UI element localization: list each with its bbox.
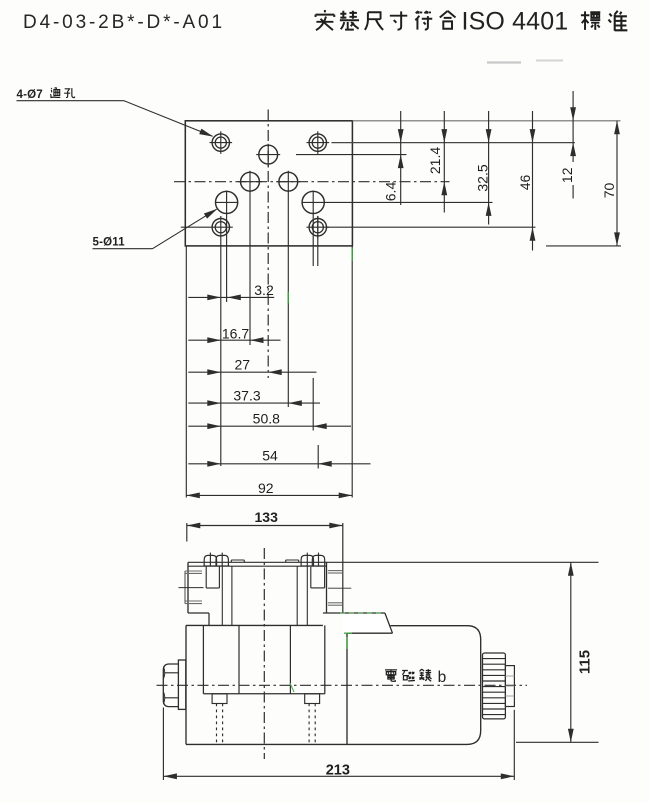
svg-text:ISO 4401: ISO 4401 — [462, 8, 569, 36]
svg-text:16.7: 16.7 — [222, 326, 249, 342]
svg-text:133: 133 — [255, 509, 279, 525]
svg-text:12: 12 — [559, 167, 575, 183]
svg-text:4-Ø7: 4-Ø7 — [17, 89, 43, 101]
svg-text:D4-03-2B*-D*-A01: D4-03-2B*-D*-A01 — [23, 12, 225, 33]
svg-text:6.4: 6.4 — [382, 182, 398, 202]
svg-text:70: 70 — [601, 183, 617, 199]
svg-text:32.5: 32.5 — [474, 164, 490, 191]
svg-text:50.8: 50.8 — [253, 410, 280, 426]
svg-text:27: 27 — [235, 356, 251, 372]
svg-text:3.2: 3.2 — [254, 282, 274, 298]
svg-text:46: 46 — [517, 175, 533, 191]
svg-text:92: 92 — [258, 480, 274, 496]
svg-text:21.4: 21.4 — [427, 147, 443, 174]
svg-text:213: 213 — [326, 762, 350, 778]
svg-text:54: 54 — [262, 448, 278, 464]
svg-text:37.3: 37.3 — [233, 387, 260, 403]
svg-text:115: 115 — [577, 650, 594, 674]
svg-text:5-Ø11: 5-Ø11 — [93, 237, 126, 249]
svg-text:b: b — [438, 669, 447, 686]
